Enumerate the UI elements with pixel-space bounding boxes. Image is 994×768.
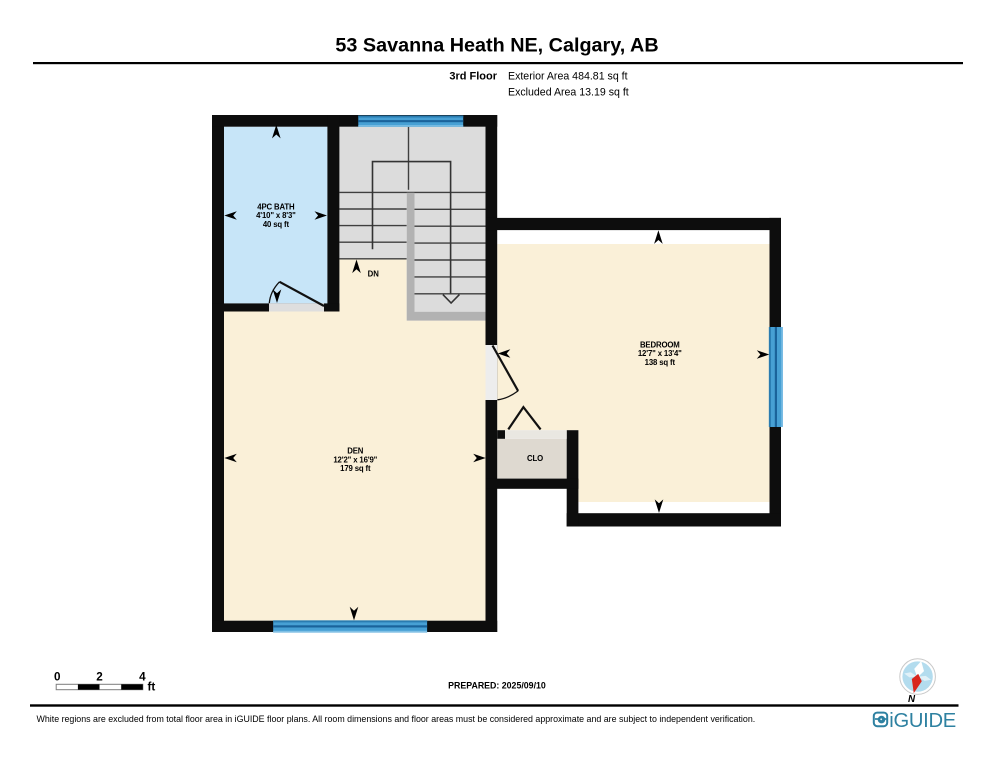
svg-text:12'7" x 13'4": 12'7" x 13'4" — [638, 349, 682, 358]
svg-text:ft: ft — [148, 681, 156, 694]
svg-text:53 Savanna Heath NE, Calgary,: 53 Savanna Heath NE, Calgary, AB — [335, 35, 658, 57]
svg-text:N: N — [908, 694, 916, 705]
svg-text:4'10" x 8'3": 4'10" x 8'3" — [256, 211, 296, 220]
svg-text:Exterior Area 484.81 sq ft: Exterior Area 484.81 sq ft — [508, 71, 628, 83]
svg-text:12'2" x 16'9": 12'2" x 16'9" — [333, 455, 377, 464]
svg-text:DEN: DEN — [347, 447, 364, 456]
svg-text:138 sq ft: 138 sq ft — [645, 358, 676, 367]
svg-text:iGUIDE: iGUIDE — [889, 710, 956, 732]
svg-text:3rd Floor: 3rd Floor — [449, 71, 497, 83]
svg-text:4PC BATH: 4PC BATH — [257, 202, 295, 211]
svg-text:PREPARED: 2025/09/10: PREPARED: 2025/09/10 — [448, 681, 546, 691]
svg-text:White regions are excluded fro: White regions are excluded from total fl… — [37, 714, 756, 724]
svg-text:2: 2 — [96, 671, 103, 684]
svg-text:179 sq ft: 179 sq ft — [340, 464, 371, 473]
svg-text:40 sq ft: 40 sq ft — [263, 220, 290, 229]
svg-text:4: 4 — [139, 671, 146, 684]
svg-text:DN: DN — [368, 269, 380, 278]
svg-text:BEDROOM: BEDROOM — [640, 340, 680, 349]
svg-text:0: 0 — [54, 671, 61, 684]
svg-text:Excluded Area 13.19 sq ft: Excluded Area 13.19 sq ft — [508, 87, 629, 99]
svg-text:CLO: CLO — [527, 454, 543, 463]
